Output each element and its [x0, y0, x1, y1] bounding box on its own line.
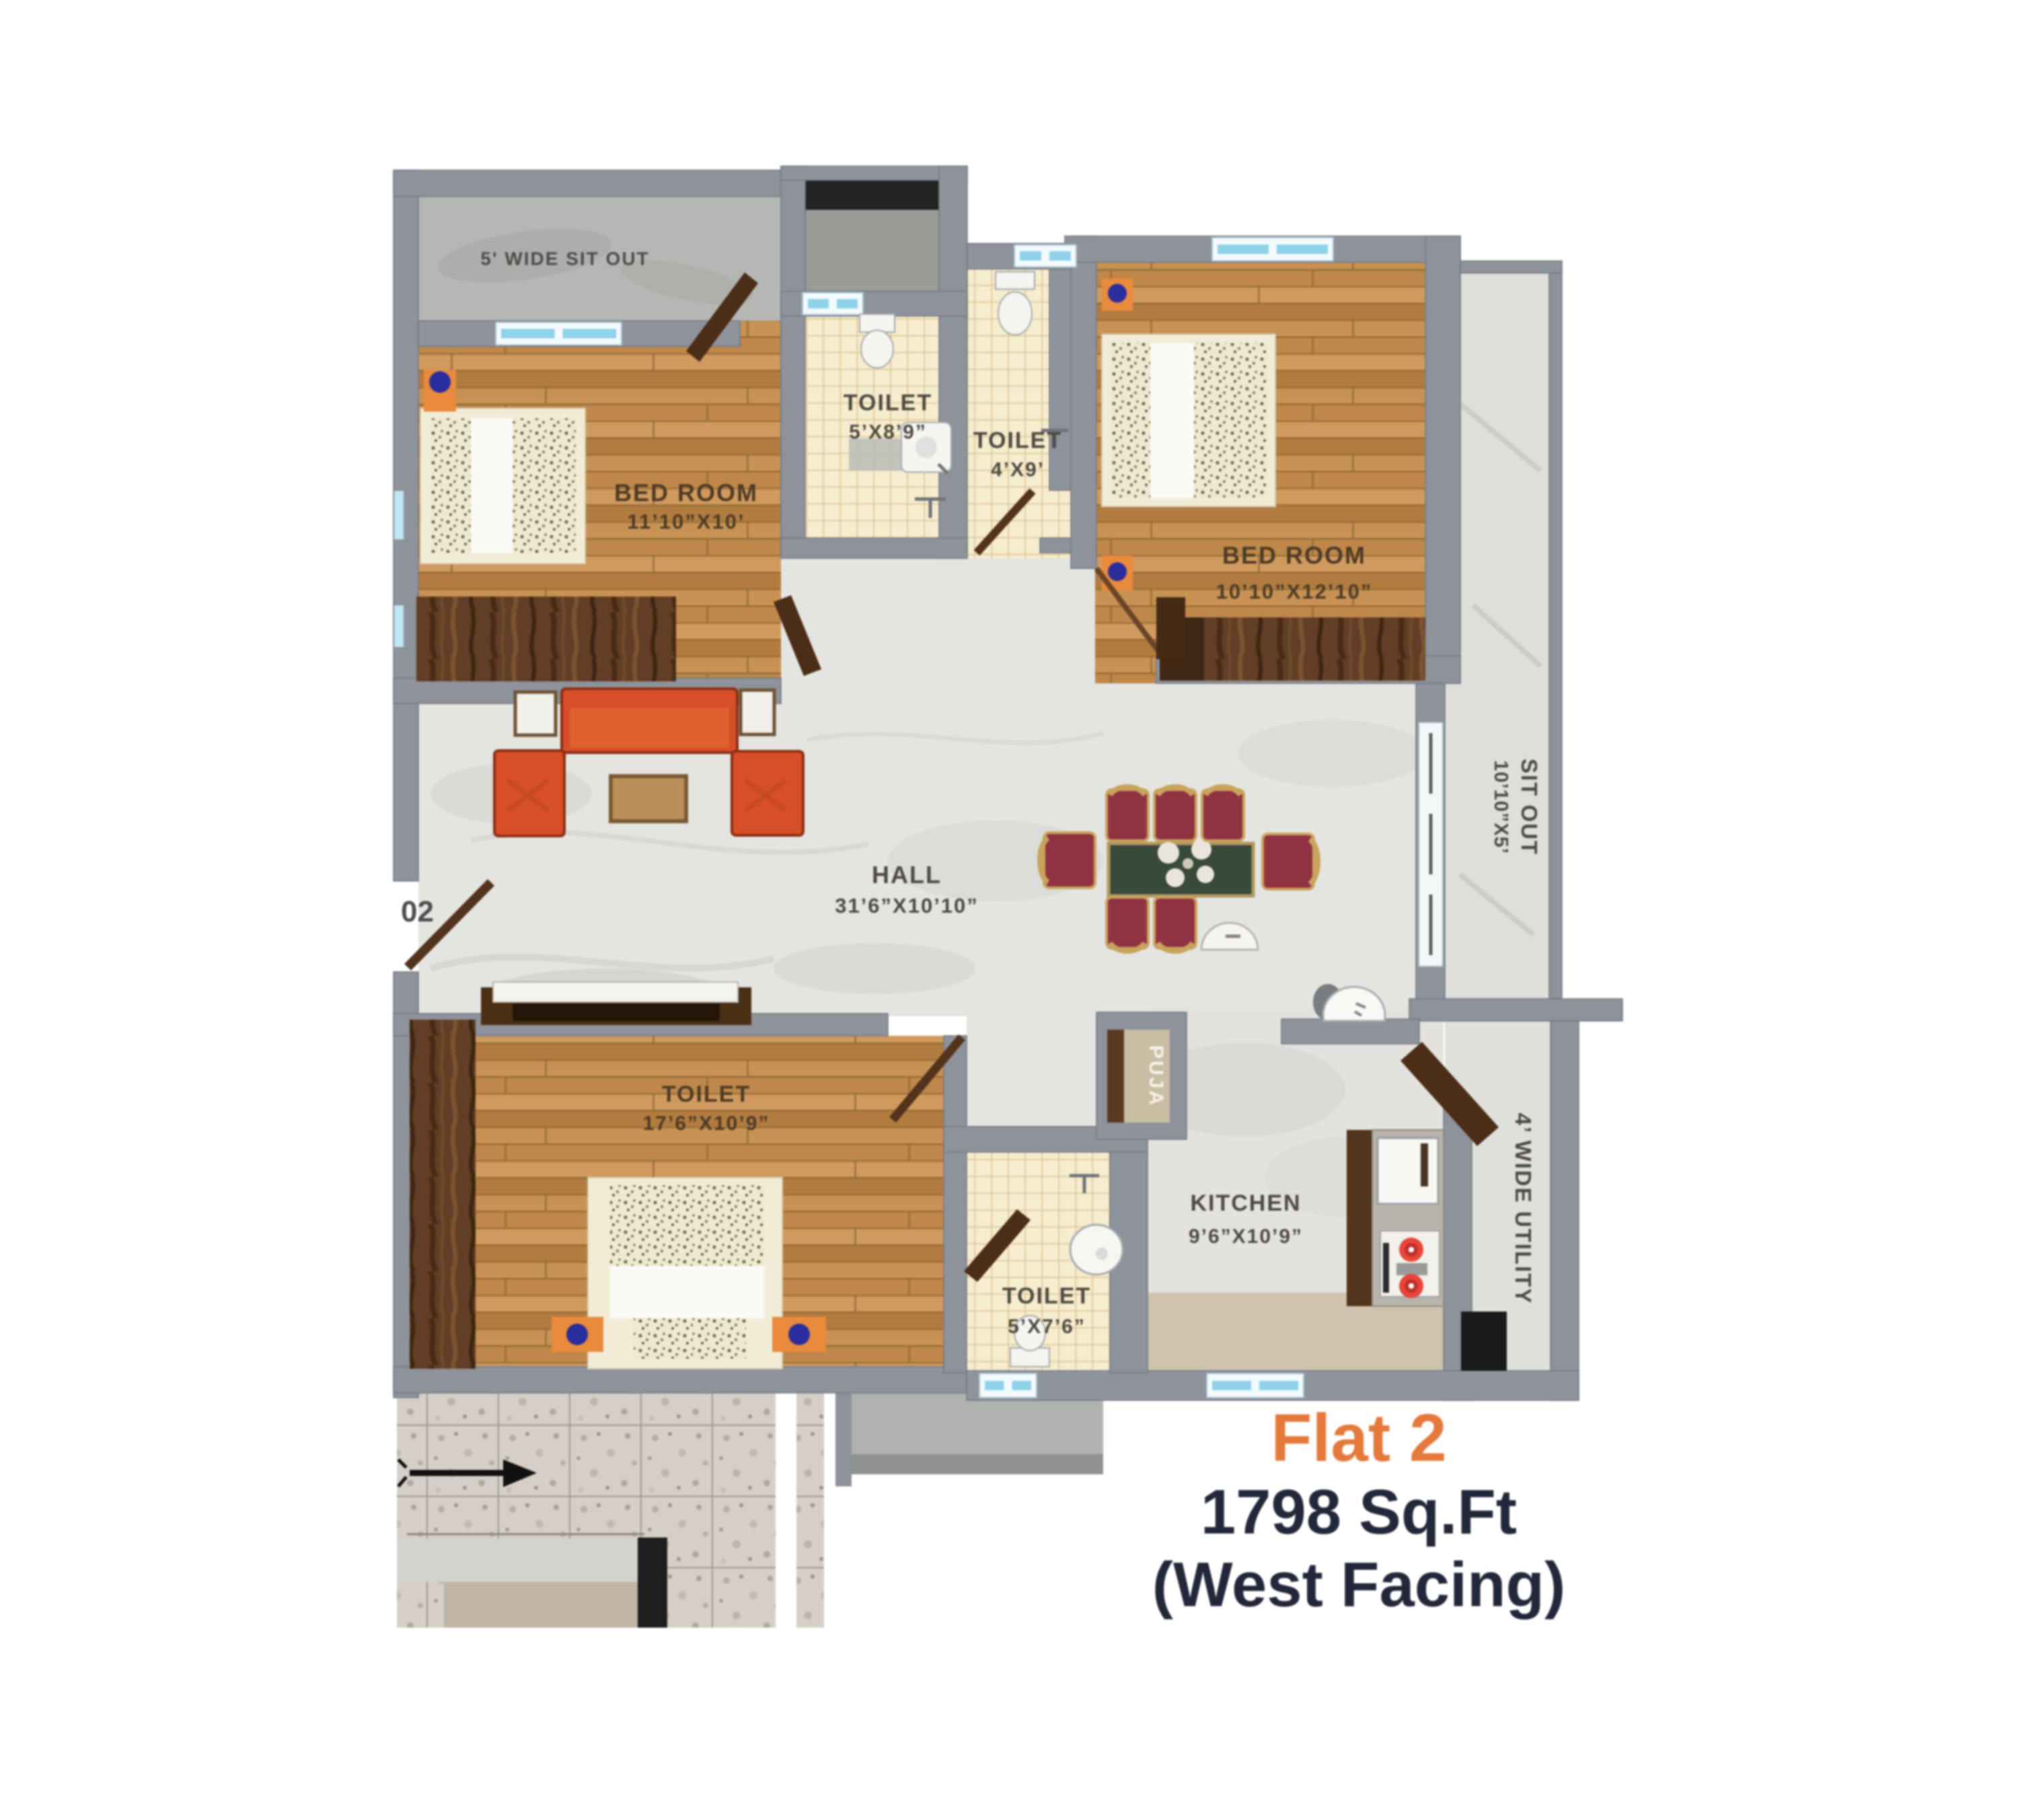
svg-text:(West Facing): (West Facing) — [1152, 1549, 1566, 1620]
svg-text:KITCHEN: KITCHEN — [1190, 1190, 1301, 1216]
svg-text:31’6”X10’10”: 31’6”X10’10” — [835, 894, 979, 917]
svg-text:4’X9’: 4’X9’ — [991, 459, 1045, 481]
svg-text:HALL: HALL — [872, 861, 942, 888]
svg-text:SIT OUT: SIT OUT — [1517, 759, 1542, 856]
svg-text:TOILET: TOILET — [973, 428, 1062, 453]
svg-text:9’6”X10’9”: 9’6”X10’9” — [1189, 1225, 1303, 1248]
svg-text:02: 02 — [401, 895, 434, 928]
svg-text:5’X7’6”: 5’X7’6” — [1008, 1316, 1086, 1338]
svg-text:1798 Sq.Ft: 1798 Sq.Ft — [1201, 1476, 1517, 1547]
svg-text:BED ROOM: BED ROOM — [614, 479, 758, 506]
svg-text:11’10”X10’: 11’10”X10’ — [627, 510, 745, 533]
svg-text:Flat 2: Flat 2 — [1271, 1400, 1446, 1476]
svg-text:PUJA: PUJA — [1145, 1045, 1167, 1107]
svg-text:BED ROOM: BED ROOM — [1222, 541, 1366, 569]
svg-text:5' WIDE SIT OUT: 5' WIDE SIT OUT — [480, 248, 649, 269]
svg-text:4’ WIDE UTILITY: 4’ WIDE UTILITY — [1511, 1113, 1536, 1305]
svg-text:5’X8’9”: 5’X8’9” — [849, 421, 927, 443]
svg-text:10’10”X12’10”: 10’10”X12’10” — [1216, 580, 1373, 603]
svg-text:TOILET: TOILET — [662, 1082, 751, 1107]
svg-text:17’6”X10’9”: 17’6”X10’9” — [643, 1112, 770, 1135]
svg-text:TOILET: TOILET — [844, 390, 932, 416]
svg-text:10’10”X5’: 10’10”X5’ — [1490, 760, 1511, 854]
svg-text:TOILET: TOILET — [1002, 1283, 1091, 1309]
